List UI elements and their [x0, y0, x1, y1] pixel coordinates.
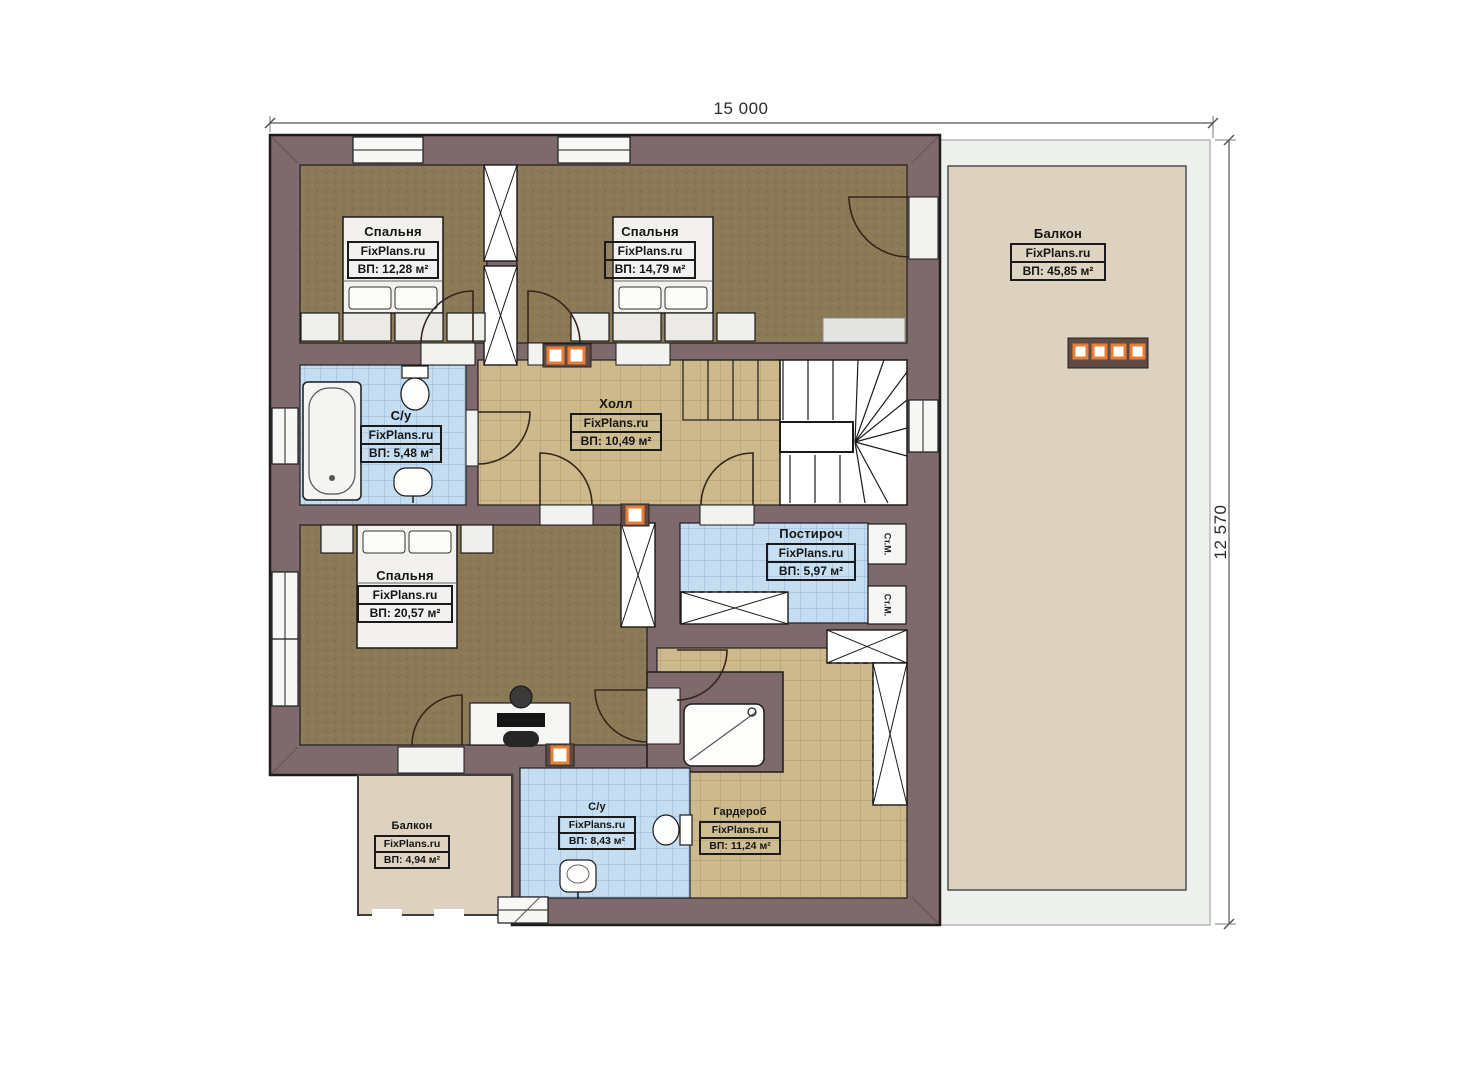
room-name: Холл — [570, 396, 662, 411]
brand-text: FixPlans.ru — [606, 243, 694, 261]
area-text: ВП: 5,97 м² — [768, 563, 854, 579]
room-info-box: FixPlans.ru ВП: 4,94 м² — [374, 835, 450, 869]
toilet-bath-small — [401, 366, 429, 410]
room-label-bedroom1: Спальня FixPlans.ru ВП: 12,28 м² — [347, 224, 439, 279]
toilet-bath-large — [653, 815, 692, 845]
washing-machine-label: Ст.М. — [868, 586, 906, 624]
brand-text: FixPlans.ru — [376, 837, 448, 853]
dimension-height-label: 12 570 — [1211, 487, 1231, 577]
floor-plan-drawing — [0, 0, 1473, 1080]
room-info-box: FixPlans.ru ВП: 14,79 м² — [604, 241, 696, 279]
room-info-box: FixPlans.ru ВП: 20,57 м² — [357, 585, 453, 623]
wardrobe-unit — [827, 630, 907, 663]
room-info-box: FixPlans.ru ВП: 11,24 м² — [699, 821, 781, 855]
duct-shaft — [484, 165, 517, 261]
monitor — [497, 713, 545, 727]
room-info-box: FixPlans.ru ВП: 45,85 м² — [1010, 243, 1106, 281]
area-text: ВП: 11,24 м² — [701, 839, 779, 853]
room-name: Спальня — [604, 224, 696, 239]
dresser-bedroom2 — [823, 318, 905, 342]
room-label-laundry: Постироч FixPlans.ru ВП: 5,97 м² — [766, 526, 856, 581]
window — [498, 897, 548, 923]
room-name: Балкон — [1010, 226, 1106, 241]
room-info-box: FixPlans.ru ВП: 5,48 м² — [360, 425, 442, 463]
window — [353, 137, 423, 163]
brand-text: FixPlans.ru — [768, 545, 854, 563]
vent-marker — [543, 344, 591, 367]
room-label-bedroom3: Спальня FixPlans.ru ВП: 20,57 м² — [357, 568, 453, 623]
vent-marker — [546, 744, 574, 766]
area-text: ВП: 14,79 м² — [606, 261, 694, 277]
room-label-balcony-large: Балкон FixPlans.ru ВП: 45,85 м² — [1010, 226, 1106, 281]
area-text: ВП: 5,48 м² — [362, 445, 440, 461]
area-text: ВП: 4,94 м² — [376, 853, 448, 867]
room-name: С/у — [558, 801, 636, 814]
office-chair — [503, 731, 539, 747]
dimension-width-label: 15 000 — [695, 99, 787, 119]
room-info-box: FixPlans.ru ВП: 8,43 м² — [558, 816, 636, 850]
area-text: ВП: 20,57 м² — [359, 605, 451, 621]
room-label-bath-small: С/у FixPlans.ru ВП: 5,48 м² — [360, 408, 442, 463]
brand-text: FixPlans.ru — [560, 818, 634, 834]
room-label-wardrobe: Гардероб FixPlans.ru ВП: 11,24 м² — [699, 806, 781, 855]
washer-text: Ст.М. — [882, 533, 892, 556]
shower — [684, 704, 764, 766]
brand-text: FixPlans.ru — [572, 415, 660, 433]
window — [909, 400, 938, 452]
room-label-hall: Холл FixPlans.ru ВП: 10,49 м² — [570, 396, 662, 451]
brand-text: FixPlans.ru — [349, 243, 437, 261]
brand-text: FixPlans.ru — [359, 587, 451, 605]
vent-marker — [621, 504, 649, 526]
room-name: Балкон — [374, 820, 450, 833]
desk-lamp — [510, 686, 532, 708]
room-name: Спальня — [357, 568, 453, 583]
washer-text: Ст.М. — [882, 594, 892, 617]
room-info-box: FixPlans.ru ВП: 12,28 м² — [347, 241, 439, 279]
floor-plan-canvas: Спальня FixPlans.ru ВП: 12,28 м² Спальня… — [0, 0, 1473, 1080]
room-label-balcony-small: Балкон FixPlans.ru ВП: 4,94 м² — [374, 820, 450, 869]
room-label-bedroom2: Спальня FixPlans.ru ВП: 14,79 м² — [604, 224, 696, 279]
room-info-box: FixPlans.ru ВП: 10,49 м² — [570, 413, 662, 451]
laundry-cabinet — [681, 592, 788, 624]
room-name: Гардероб — [699, 806, 781, 819]
duct-shaft — [621, 523, 655, 627]
room-name: Постироч — [766, 526, 856, 541]
area-text: ВП: 45,85 м² — [1012, 263, 1104, 279]
area-text: ВП: 10,49 м² — [572, 433, 660, 449]
brand-text: FixPlans.ru — [362, 427, 440, 445]
window — [558, 137, 630, 163]
room-label-bath-large: С/у FixPlans.ru ВП: 8,43 м² — [558, 801, 636, 850]
duct-shaft — [484, 266, 517, 365]
room-name: Спальня — [347, 224, 439, 239]
wardrobe-unit — [873, 663, 907, 805]
washing-machine-label: Ст.М. — [868, 524, 906, 564]
area-text: ВП: 12,28 м² — [349, 261, 437, 277]
window — [272, 572, 298, 706]
room-name: С/у — [360, 408, 442, 423]
area-text: ВП: 8,43 м² — [560, 834, 634, 848]
bathtub — [303, 382, 361, 500]
brand-text: FixPlans.ru — [701, 823, 779, 839]
room-info-box: FixPlans.ru ВП: 5,97 м² — [766, 543, 856, 581]
window — [272, 408, 298, 464]
vent-marker — [1068, 338, 1148, 368]
brand-text: FixPlans.ru — [1012, 245, 1104, 263]
